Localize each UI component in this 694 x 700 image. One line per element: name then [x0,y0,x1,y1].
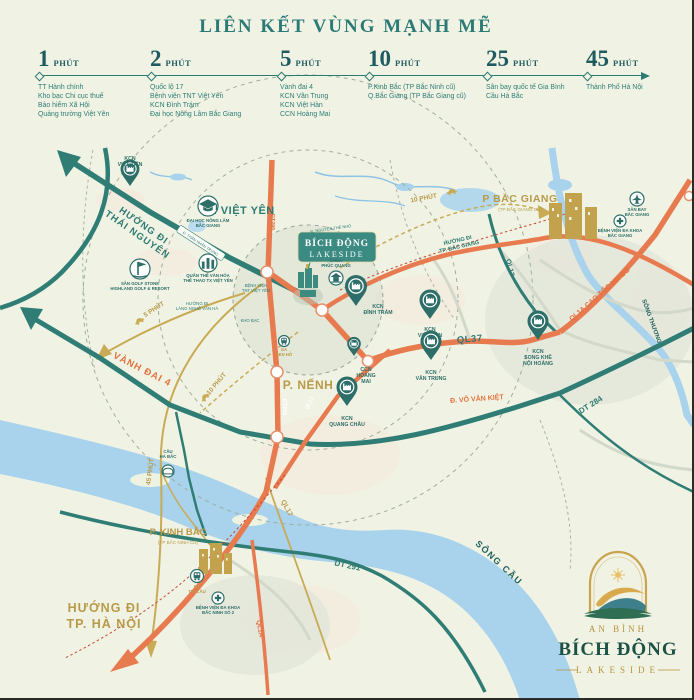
map-label-p-bac-giang: P BẮC GIANG [482,192,557,205]
destination-quang-truong-viet-yen: Quảng trường Việt Yên [38,110,148,119]
timeline-col-25-phut: 25PHÚTSân bay quốc tế Gia BìnhCầu Hà Bắc [486,48,582,126]
map-label-huong-i-lang-nghe-van-ha: HƯỚNG ĐILÀNG NGHỀ VÂN HÀ [176,301,219,311]
poi-label-quan-the-van-hoa-the-thao-tx-viet-yen: QUẦN THỂ VĂN HÓATHỂ THAO TX VIỆT YÊN [183,273,232,283]
destination-quoc-lo-17: Quốc lộ 17 [150,83,276,92]
car-icon [134,316,145,326]
time-unit: PHÚT [166,58,192,68]
destination-kho-bac-chi-cuc-thue: Kho bạc Chi cục thuế [38,92,148,101]
time-value: 1 [38,48,50,70]
pin-label-kcn-van-trung: KCNVÂN TRUNG [416,370,447,382]
destination-ccn-hoang-mai: CCN Hoàng Mai [280,110,366,119]
time-unit: PHÚT [54,58,80,68]
destination-thanh-pho-ha-noi: Thành Phố Hà Nội [586,83,666,92]
train-icon [279,336,290,347]
poster-page: BÍCH ĐỘNG LAKESIDE Đ. THÂN NHÂN TRUNG P.… [0,0,694,700]
timeline-diamond-icon [35,71,45,81]
train-icon [191,570,204,583]
destination-kcn-van-trung: KCN Vân Trung [280,92,366,101]
map-label-t295: ĐT295 [269,214,275,231]
pin-kcn-quang-chau [337,377,358,407]
destination-bao-hiem-xa-hoi: Bảo hiểm Xã Hội [38,101,148,110]
destination-ai-hoc-nong-lam-bac-giang: Đại học Nông Lâm Bắc Giang [150,110,276,119]
poi-label-benh-vien-a-khoa-bac-ninh-so-2: BỆNH VIỆN ĐA KHOABẮC NINH SỐ 2 [196,605,240,615]
poi-label-san-golf-stone-highland-golf-resort: SÂN GOLF STONEHIGHLAND GOLF & RESORT [110,281,170,291]
time-unit: PHÚT [395,58,421,68]
time-value: 25 [486,48,509,70]
map-label-benh-vien-tnt-viet-yen: BỆNH VIỆNTNT VIỆT YÊN [242,283,270,293]
logo-sun-icon [611,568,625,582]
destination-kcn-inh-tram: KCN Đình Trám [150,101,276,110]
pin-label-ccn-hoang-mai: CCNHOÀNGMAI [356,367,375,385]
timeline-time: 10PHÚT [368,48,482,72]
time-value: 5 [280,48,292,70]
timeline-time: 2PHÚT [150,48,276,72]
time-unit: PHÚT [613,58,639,68]
timeline-time: 5PHÚT [280,48,366,72]
timeline-diamond-icon [365,71,375,81]
timeline-col-1-phut: 1PHÚTTT Hành chínhKho bạc Chi cục thuếBả… [38,48,148,126]
bridge-icon [162,465,174,477]
time-value: 10 [368,48,391,70]
pin-kcn-van-trung [421,331,442,361]
time-value: 2 [150,48,162,70]
plane-icon [630,192,644,206]
cross-icon [212,592,224,604]
destination-tt-hanh-chinh: TT Hành chính [38,83,148,92]
map-label-vo-van-kiet: Đ. VÕ VĂN KIỆT [450,392,505,405]
pin-label-kcn-viet-tien: KCNVIỆT TIẾN [118,156,143,168]
map-label-ql37: QL37 [456,333,483,346]
map-label-ql17: QL17 [304,396,317,411]
teal-arrows [20,150,81,330]
destination-list: Thành Phố Hà Nội [586,83,666,92]
map-label-10-phut: 10 PHÚT [410,191,438,205]
columns-icon [199,254,217,272]
time-unit: PHÚT [296,58,322,68]
timeline-diamond-icon [583,71,593,81]
poi-label-cau-ha-bac: CẦUHÀ BẮC [160,449,177,459]
poi-label-san-bay-bac-giang: SÂN BAYBẮC GIANG [625,207,650,217]
destination-q-bac-giang-tp-bac-giang-cu: Q.Bắc Giang (TP Bắc Giang cũ) [368,92,482,101]
logo-sub: LAKESIDE [576,665,660,675]
map-label-tp-bac-giang-cu: (TP BẮC GIANG CŨ) [498,205,542,212]
golf-icon [130,259,150,279]
timeline-diamond-icon [147,71,157,81]
timeline-time: 1PHÚT [38,48,148,72]
destination-san-bay-quoc-te-gia-binh: Sân bay quốc tế Gia Bình [486,83,582,92]
destination-vanh-ai-4: Vành đai 4 [280,83,366,92]
time-value: 45 [586,48,609,70]
cross-icon [614,215,626,227]
timeline-col-10-phut: 10PHÚTP.Kinh Bắc (TP Bắc Ninh cũ)Q.Bắc G… [368,48,482,126]
map-label-t295: ĐT295 [281,399,287,416]
destination-list: Sân bay quốc tế Gia BìnhCầu Hà Bắc [486,83,582,101]
destination-kcn-viet-han: KCN Việt Hàn [280,101,366,110]
destination-list: Vành đai 4KCN Vân TrungKCN Việt HànCCN H… [280,83,366,119]
pagoda-icon [329,271,343,285]
page-title: LIÊN KẾT VÙNG MẠNH MẼ [0,16,692,38]
brand-logo: AN BÌNH BÍCH ĐỘNG LAKESIDE [556,552,680,675]
map-label-p-kinh-bac: P. KINH BẮC [150,527,207,538]
timeline-time: 25PHÚT [486,48,582,72]
timeline-col-5-phut: 5PHÚTVành đai 4KCN Vân TrungKCN Việt Hàn… [280,48,366,126]
destination-list: TT Hành chínhKho bạc Chi cục thuếBảo hiể… [38,83,148,119]
connectivity-header: LIÊN KẾT VÙNG MẠNH MẼ 1PHÚTTT Hành chính… [0,0,692,126]
travel-time-timeline: 1PHÚTTT Hành chínhKho bạc Chi cục thuếBả… [36,48,656,126]
destination-benh-vien-tnt-viet-yen: Bệnh viện TNT Việt Yên [150,92,276,101]
timeline-col-2-phut: 2PHÚTQuốc lộ 17Bệnh viện TNT Việt YênKCN… [150,48,276,126]
destination-list: P.Kinh Bắc (TP Bắc Ninh cũ)Q.Bắc Giang (… [368,83,482,101]
timeline-diamond-icon [277,71,287,81]
map-label-huong-i-tp-ha-noi: HƯỚNG ĐITP. HÀ NỘI [66,600,141,631]
logo-brand: AN BÌNH [589,624,647,634]
map-label-5-phut: 5 PHÚT [141,299,165,319]
logo-name: BÍCH ĐỘNG [558,638,677,660]
destination-p-kinh-bac-tp-bac-ninh-cu: P.Kinh Bắc (TP Bắc Ninh cũ) [368,83,482,92]
map-label-10-phut: 10 PHÚT [204,370,228,396]
destination-cau-ha-bac: Cầu Hà Bắc [486,92,582,101]
timeline-col-45-phut: 45PHÚTThành Phố Hà Nội [586,48,666,126]
destination-list: Quốc lộ 17Bệnh viện TNT Việt YênKCN Đình… [150,83,276,119]
time-unit: PHÚT [513,58,539,68]
map-label-p-nenh: P. NẾNH [283,377,334,392]
grad-icon [198,196,218,216]
timeline-diamond-icon [483,71,493,81]
poi-label-ga-thi-cau: GATHỊ CẦU [188,584,205,594]
map-label-tp-bac-ninh-cu: (TP BẮC NINH CŨ) [158,538,198,545]
timeline-time: 45PHÚT [586,48,666,72]
map-label-kho-bac: KHO BẠC [241,318,260,323]
